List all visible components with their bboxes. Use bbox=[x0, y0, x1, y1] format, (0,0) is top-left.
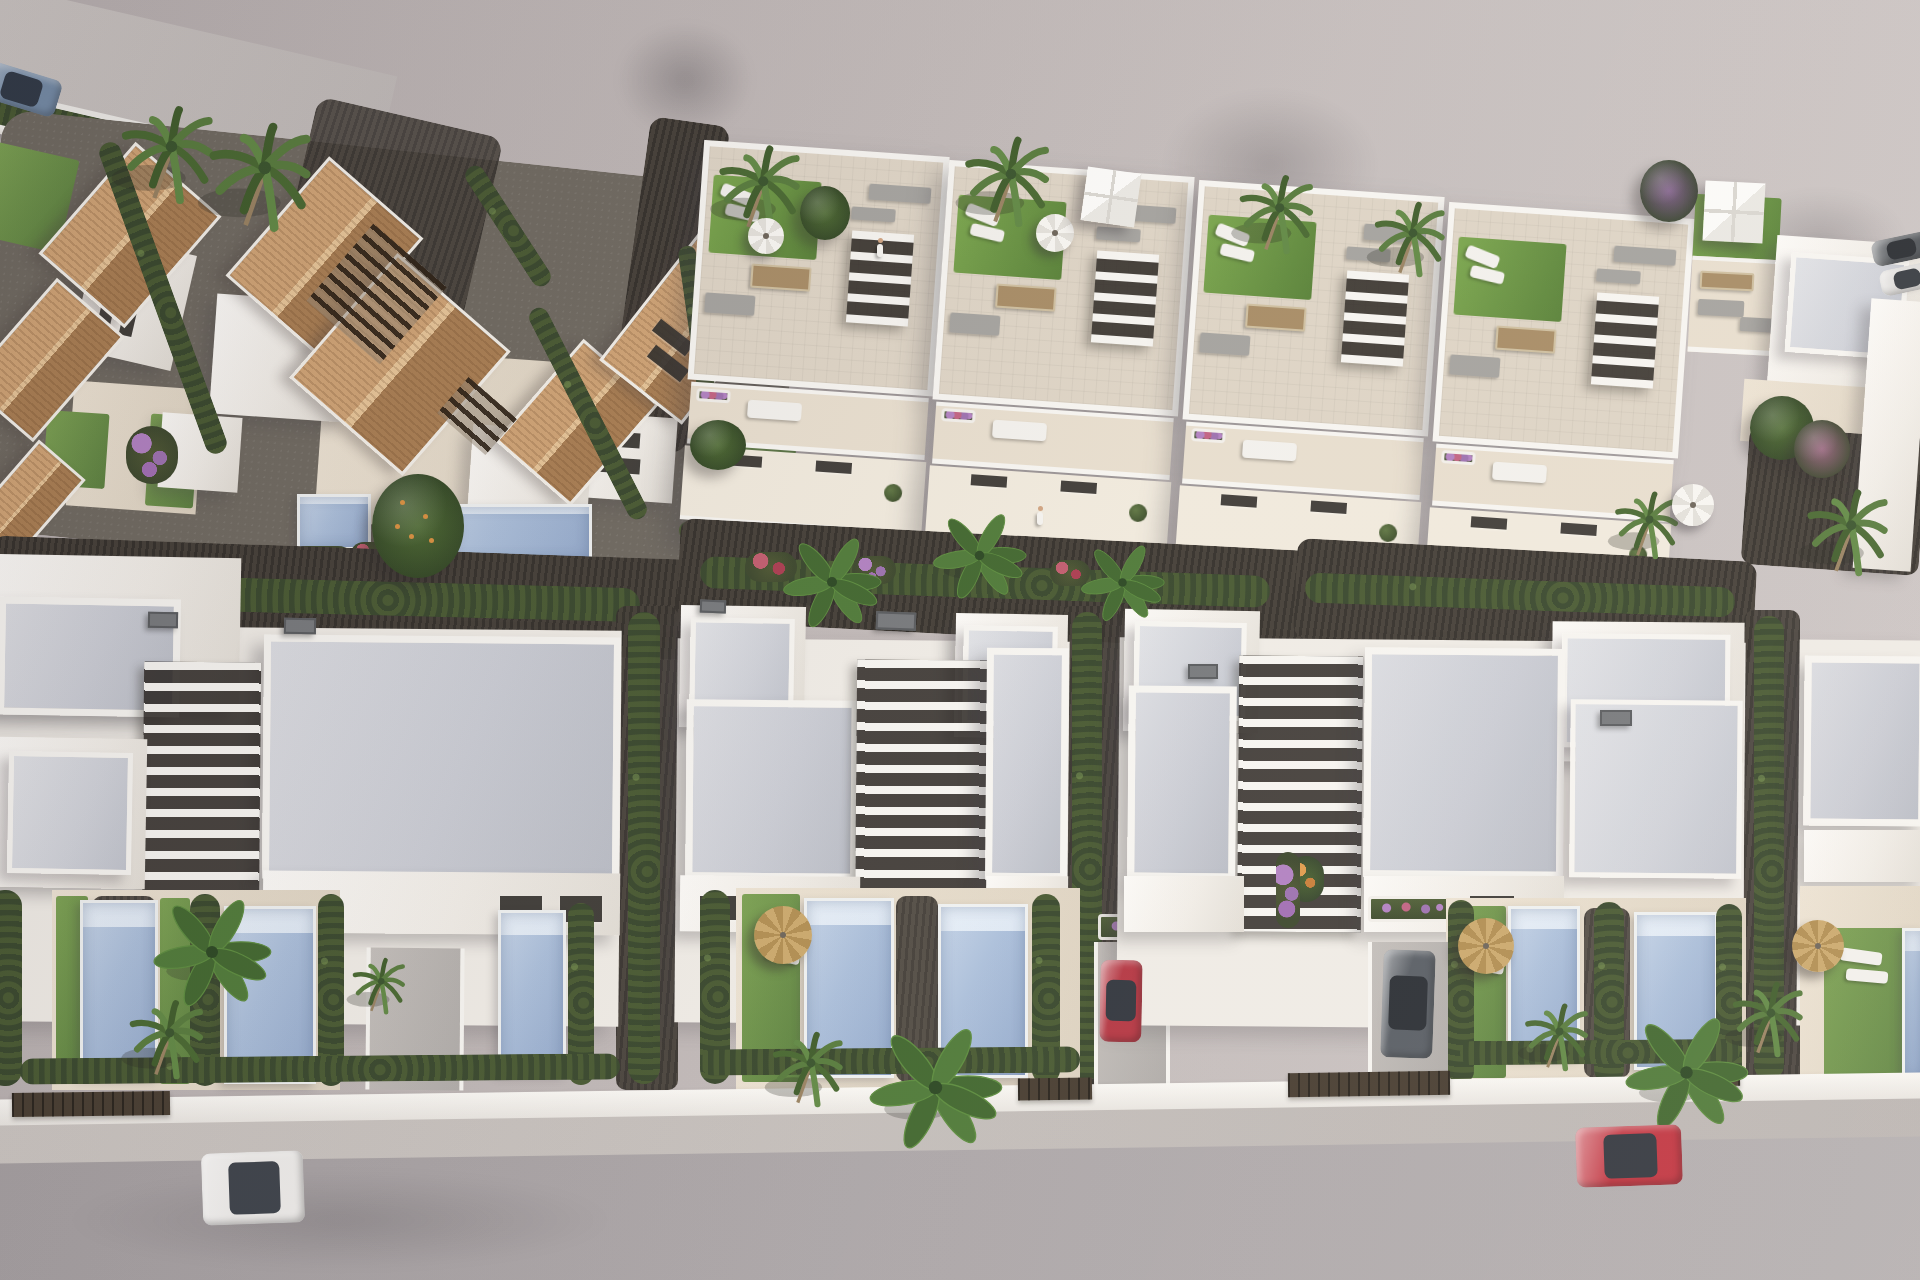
umbrella-pole bbox=[1483, 943, 1489, 949]
banana-palm bbox=[1080, 540, 1165, 625]
dining-table bbox=[1700, 271, 1755, 292]
parasol-ribs bbox=[1702, 180, 1765, 243]
white-umbrella bbox=[1672, 484, 1714, 526]
palm-tree bbox=[1222, 150, 1338, 266]
terrace-sofa bbox=[1492, 462, 1547, 484]
terrace-sofa bbox=[747, 400, 802, 422]
ac-unit bbox=[148, 612, 178, 629]
person-head bbox=[878, 238, 883, 243]
banana-palm bbox=[1624, 1010, 1749, 1135]
car-glass bbox=[1106, 979, 1137, 1021]
fruit bbox=[400, 500, 405, 505]
palm-tree bbox=[340, 940, 423, 1023]
banana-palm bbox=[868, 1020, 1003, 1155]
car-glass bbox=[1603, 1133, 1657, 1178]
car-glass bbox=[228, 1161, 281, 1215]
person-body bbox=[877, 244, 883, 257]
flat-roof bbox=[1803, 655, 1920, 826]
flower-planter bbox=[941, 408, 976, 423]
red-coupe-road bbox=[1575, 1124, 1683, 1188]
white-umbrella bbox=[1036, 214, 1074, 252]
ac-unit bbox=[1188, 664, 1218, 679]
banana-palm bbox=[782, 532, 882, 632]
fruit bbox=[423, 514, 428, 519]
person bbox=[1036, 506, 1044, 526]
flat-roof bbox=[1569, 699, 1743, 878]
red-car-driveway bbox=[1099, 960, 1142, 1043]
dining-table bbox=[1245, 304, 1307, 332]
dining-table bbox=[995, 284, 1057, 312]
fruit bbox=[429, 538, 434, 543]
flat-roof bbox=[985, 648, 1069, 881]
umbrella-pole bbox=[1690, 502, 1696, 508]
palm-tree bbox=[185, 88, 345, 248]
hedge bbox=[20, 1053, 620, 1084]
flat-roof bbox=[262, 634, 621, 881]
ac-unit bbox=[700, 600, 726, 614]
palm-tree bbox=[756, 1008, 866, 1118]
flower-shrub bbox=[1276, 852, 1300, 928]
lounge-sofa bbox=[949, 312, 1000, 335]
stair-pergola bbox=[1591, 292, 1659, 388]
lounge-sofa bbox=[1199, 332, 1250, 355]
villa-facade bbox=[1124, 876, 1244, 932]
swimming-pool bbox=[498, 910, 566, 1074]
parasol-ribs bbox=[1081, 167, 1142, 228]
flower-shrub bbox=[126, 426, 178, 484]
fruit bbox=[395, 524, 400, 529]
garden-tree bbox=[1640, 160, 1698, 222]
straw-umbrella bbox=[1792, 920, 1844, 972]
flower-planter bbox=[1191, 428, 1226, 443]
wooden-gate bbox=[12, 1091, 170, 1117]
person-body bbox=[1037, 512, 1043, 525]
straw-umbrella bbox=[1458, 918, 1514, 974]
white-umbrella bbox=[748, 218, 784, 254]
lounge-sofa bbox=[704, 292, 755, 315]
ac-unit bbox=[1600, 710, 1632, 726]
villa-facade bbox=[1804, 830, 1920, 882]
terrace-sofa bbox=[992, 420, 1047, 442]
flower-planter bbox=[1441, 450, 1476, 465]
square-parasol bbox=[1081, 167, 1142, 228]
fruit bbox=[409, 534, 414, 539]
dining-table bbox=[1495, 326, 1557, 354]
road-shadow bbox=[0, 1150, 720, 1280]
wooden-gate bbox=[1018, 1077, 1092, 1100]
dining-table bbox=[750, 264, 812, 292]
umbrella-pole bbox=[780, 932, 786, 938]
flat-roof bbox=[685, 699, 859, 880]
outdoor-furniture bbox=[1698, 299, 1745, 317]
umbrella-pole bbox=[1052, 230, 1058, 236]
square-parasol bbox=[1702, 180, 1765, 243]
palm-tree bbox=[1510, 982, 1609, 1081]
swimming-pool bbox=[1902, 928, 1920, 1080]
lounge-sofa bbox=[1449, 354, 1500, 377]
flat-roof bbox=[1127, 686, 1237, 881]
palm-tree bbox=[1358, 178, 1468, 288]
garden-tree bbox=[372, 474, 464, 578]
flat-roof bbox=[1363, 647, 1565, 879]
flower-planter bbox=[1368, 896, 1452, 922]
gray-car-driveway bbox=[1380, 949, 1436, 1059]
hedge bbox=[628, 612, 660, 1084]
banana-palm bbox=[932, 508, 1027, 603]
wooden-gate bbox=[1288, 1071, 1450, 1097]
terrace-sofa bbox=[1242, 440, 1297, 462]
aerial-development-render: Aerial oblique 3D render of a new-build … bbox=[0, 0, 1920, 1280]
hedge bbox=[0, 890, 22, 1086]
ac-unit bbox=[284, 618, 316, 635]
person-head bbox=[1038, 506, 1043, 511]
flat-roof bbox=[7, 751, 133, 875]
person bbox=[876, 238, 884, 258]
palm-tree bbox=[1788, 462, 1915, 589]
straw-umbrella bbox=[754, 906, 812, 964]
umbrella-pole bbox=[1815, 943, 1821, 949]
garden-tree bbox=[690, 420, 746, 470]
umbrella-pole bbox=[763, 233, 769, 239]
white-hatchback bbox=[201, 1150, 305, 1226]
car-glass bbox=[1388, 975, 1427, 1030]
flower-planter bbox=[696, 388, 731, 403]
banana-palm bbox=[152, 892, 272, 1012]
stair-pergola bbox=[1091, 250, 1159, 346]
